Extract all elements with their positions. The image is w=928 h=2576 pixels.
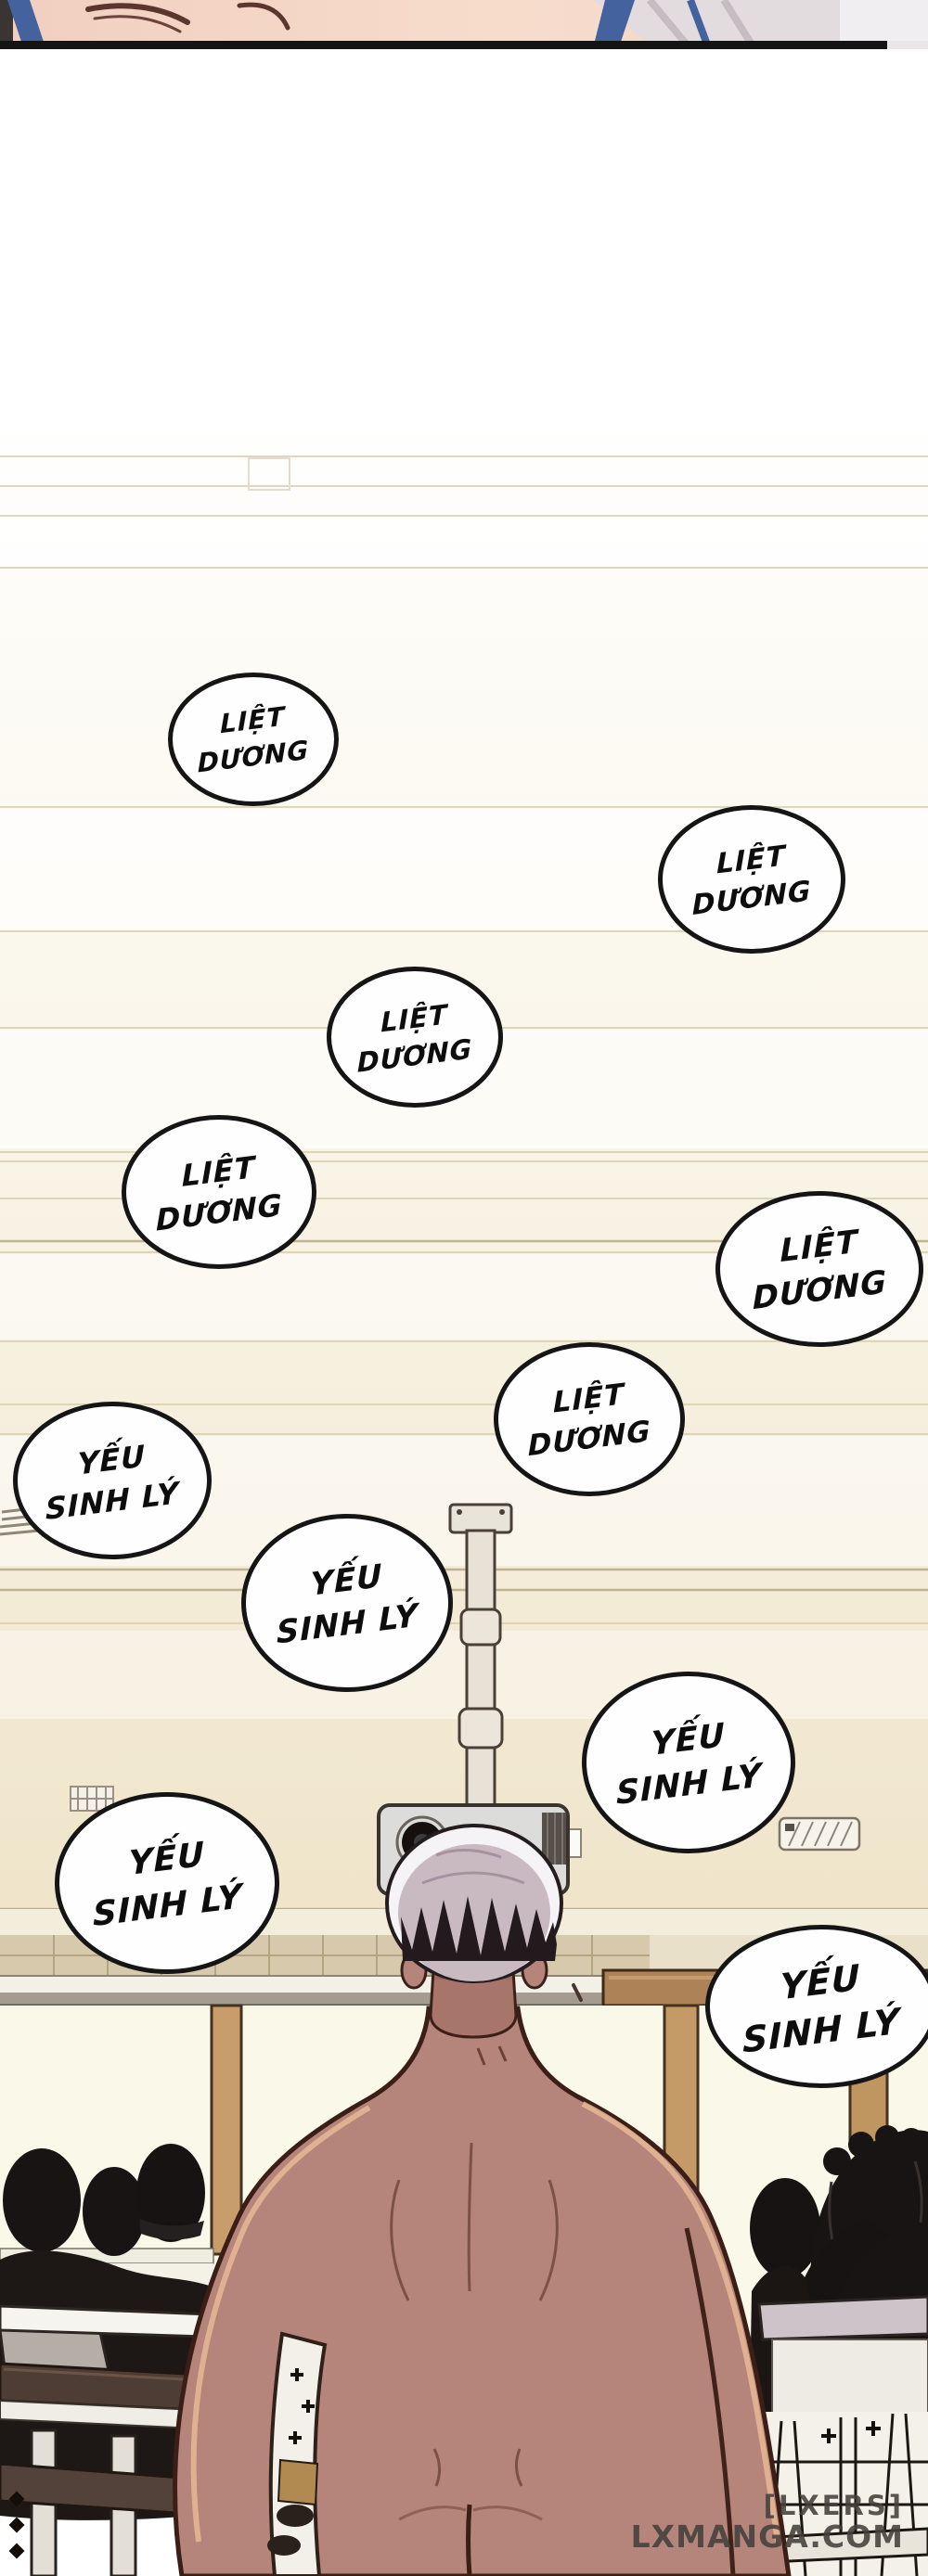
desk-panel-right [772, 2339, 928, 2419]
projector-mount-plate [450, 1505, 511, 1532]
diamond-marks [9, 2492, 25, 2559]
watermark: [LXERS] LXMANGA.COM [631, 2492, 904, 2554]
comic-scene [0, 0, 928, 2576]
ceiling-grille [71, 1787, 113, 1811]
watermark-line1: [LXERS] [631, 2492, 904, 2520]
comic-page: LIỆTDƯƠNGLIỆTDƯƠNGLIỆTDƯƠNGLIỆTDƯƠNGLIỆT… [0, 0, 928, 2576]
window-top-beam [603, 1970, 928, 2006]
arm-gap-background [267, 2334, 325, 2576]
watermark-line2: LXMANGA.COM [631, 2520, 904, 2554]
previous-panel-fragment [0, 0, 928, 49]
projector-pole [467, 1531, 495, 1811]
butt-line [469, 2505, 470, 2576]
ceiling-light-fixture [780, 1818, 859, 1850]
window-post [850, 2006, 887, 2145]
panel-border [0, 41, 887, 49]
desk-top-right [759, 2297, 928, 2339]
